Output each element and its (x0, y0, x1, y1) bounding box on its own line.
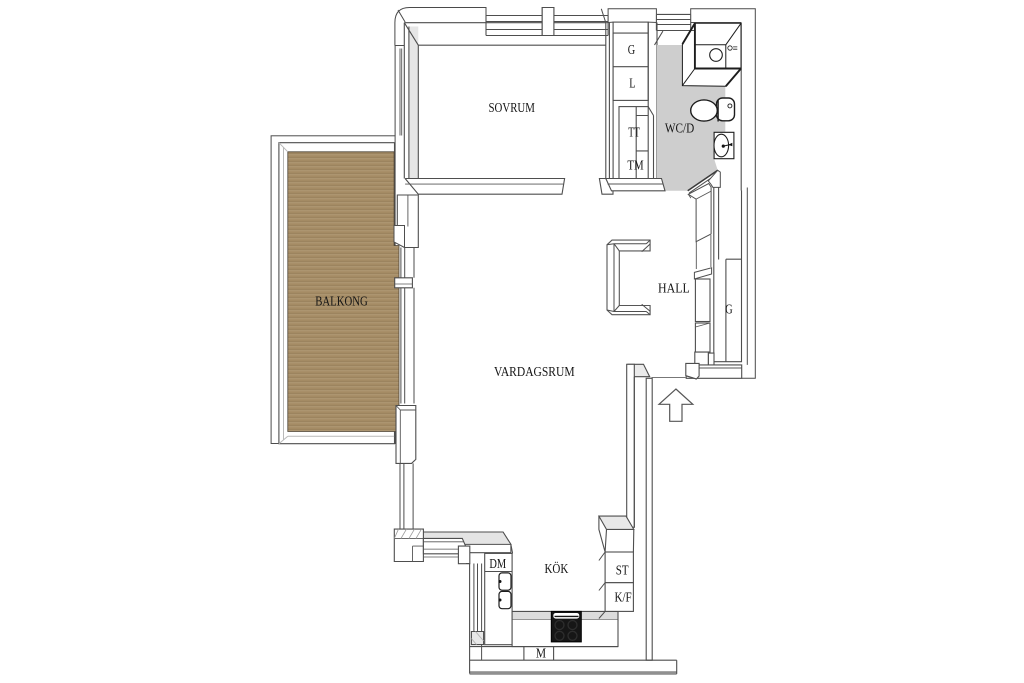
svg-text:TT: TT (628, 125, 640, 140)
svg-text:KÖK: KÖK (544, 560, 568, 577)
svg-text:L: L (629, 77, 635, 92)
svg-text:BALKONG: BALKONG (315, 294, 368, 309)
svg-text:G: G (628, 43, 635, 58)
svg-text:DM: DM (489, 557, 506, 572)
svg-text:HALL: HALL (658, 282, 690, 297)
svg-text:ST: ST (616, 564, 629, 579)
svg-text:G: G (725, 303, 732, 318)
svg-text:SOVRUM: SOVRUM (489, 101, 536, 116)
svg-text:K/F: K/F (614, 590, 631, 605)
svg-text:TM: TM (627, 158, 644, 173)
svg-text:VARDAGSRUM: VARDAGSRUM (494, 365, 575, 380)
svg-text:WC/D: WC/D (665, 121, 694, 136)
svg-text:M: M (536, 647, 547, 662)
